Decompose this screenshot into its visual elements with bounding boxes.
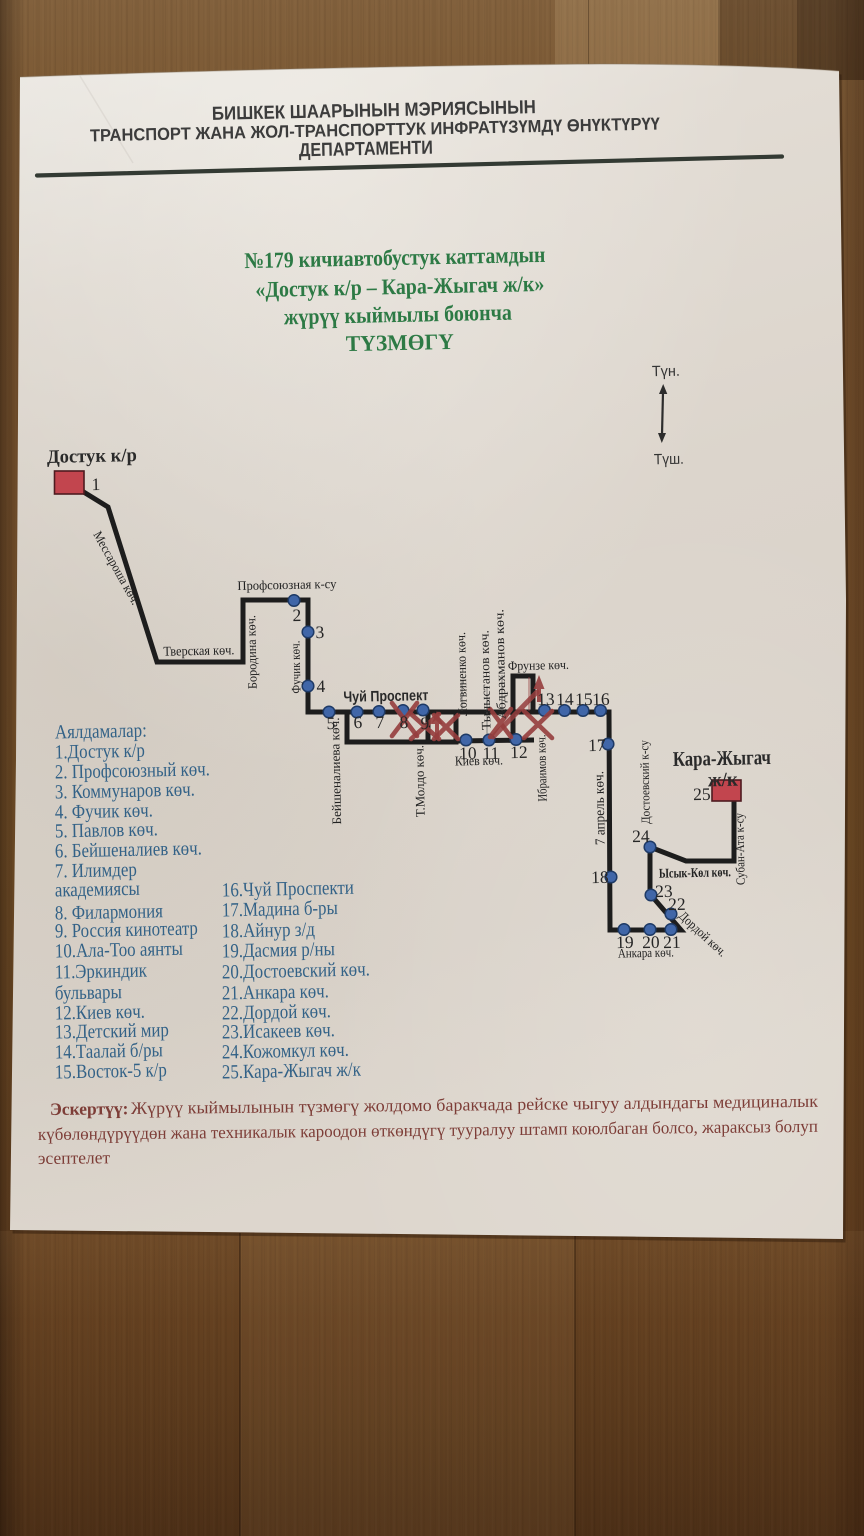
- svg-text:Анкара көч.: Анкара көч.: [618, 944, 674, 960]
- svg-text:16: 16: [592, 689, 610, 709]
- svg-text:жүрүү кыймылы боюнча: жүрүү кыймылы боюнча: [284, 300, 512, 330]
- svg-text:4: 4: [316, 676, 325, 696]
- svg-text:Бейшеналиева көч.: Бейшеналиева көч.: [327, 717, 344, 824]
- svg-text:23: 23: [655, 881, 673, 901]
- svg-text:ТҮЗМӨГҮ: ТҮЗМӨГҮ: [346, 329, 454, 356]
- svg-text:ж/к: ж/к: [708, 769, 739, 792]
- svg-text:Чуй Проспект: Чуй Проспект: [343, 687, 428, 706]
- svg-text:Кара-Жыгач: Кара-Жыгач: [673, 745, 772, 771]
- svg-text:Ибраимов көч.: Ибраимов көч.: [533, 734, 549, 801]
- svg-text:15.Восток-5 к/р: 15.Восток-5 к/р: [55, 1059, 167, 1083]
- svg-text:10.Ала-Тоо аянты: 10.Ала-Тоо аянты: [55, 938, 183, 963]
- svg-text:7: 7: [375, 712, 384, 732]
- svg-text:Достоевский к-су: Достоевский к-су: [637, 739, 653, 824]
- svg-text:8: 8: [399, 712, 408, 732]
- svg-text:Түш.: Түш.: [654, 451, 684, 469]
- svg-text:11.Эркиндик: 11.Эркиндик: [55, 960, 148, 984]
- svg-text:Тыныстанов көч.: Тыныстанов көч.: [476, 630, 493, 730]
- svg-text:17: 17: [588, 735, 606, 755]
- svg-text:эсептелет: эсептелет: [38, 1147, 111, 1168]
- svg-text:14: 14: [556, 689, 574, 709]
- svg-text:12: 12: [510, 742, 528, 762]
- svg-text:7 апрель көч.: 7 апрель көч.: [592, 771, 609, 845]
- svg-text:6: 6: [353, 712, 362, 732]
- svg-text:17.Мадина б-ры: 17.Мадина б-ры: [222, 897, 338, 921]
- svg-text:15: 15: [575, 689, 593, 709]
- svg-text:Эскертүү:: Эскертүү:: [50, 1098, 129, 1119]
- svg-text:Логвиненко көч.: Логвиненко көч.: [453, 632, 470, 716]
- svg-text:1: 1: [91, 474, 100, 494]
- svg-text:24: 24: [632, 826, 650, 846]
- svg-text:20.Достоевский көч.: 20.Достоевский көч.: [222, 958, 370, 983]
- svg-text:18: 18: [591, 867, 609, 887]
- svg-text:25.Кара-Жыгач ж/к: 25.Кара-Жыгач ж/к: [222, 1059, 362, 1084]
- svg-text:2: 2: [292, 605, 301, 625]
- svg-text:академиясы: академиясы: [55, 878, 140, 902]
- svg-text:9: 9: [420, 713, 429, 733]
- svg-text:Т.Молдо көч.: Т.Молдо көч.: [411, 745, 428, 817]
- svg-text:Бородина көч.: Бородина көч.: [243, 615, 260, 689]
- svg-text:Субан-Ата к-су: Субан-Ата к-су: [732, 812, 748, 885]
- svg-text:13: 13: [537, 689, 555, 709]
- svg-text:Профсоюзная к-су: Профсоюзная к-су: [237, 576, 337, 593]
- svg-text:Абдрахманов көч.: Абдрахманов көч.: [491, 609, 508, 719]
- svg-text:Фрунзе көч.: Фрунзе көч.: [508, 657, 569, 673]
- svg-text:Достук к/р: Достук к/р: [47, 445, 137, 468]
- svg-text:ДЕПАРТАМЕНТИ: ДЕПАРТАМЕНТИ: [299, 138, 433, 162]
- svg-text:Киев көч.: Киев көч.: [455, 753, 503, 769]
- svg-text:Түн.: Түн.: [652, 363, 680, 381]
- svg-text:Ысык-Көл көч.: Ысык-Көл көч.: [659, 864, 731, 881]
- svg-text:3: 3: [315, 622, 324, 642]
- svg-text:Тверская көч.: Тверская көч.: [163, 642, 234, 658]
- svg-text:Фучик көч.: Фучик көч.: [287, 640, 303, 693]
